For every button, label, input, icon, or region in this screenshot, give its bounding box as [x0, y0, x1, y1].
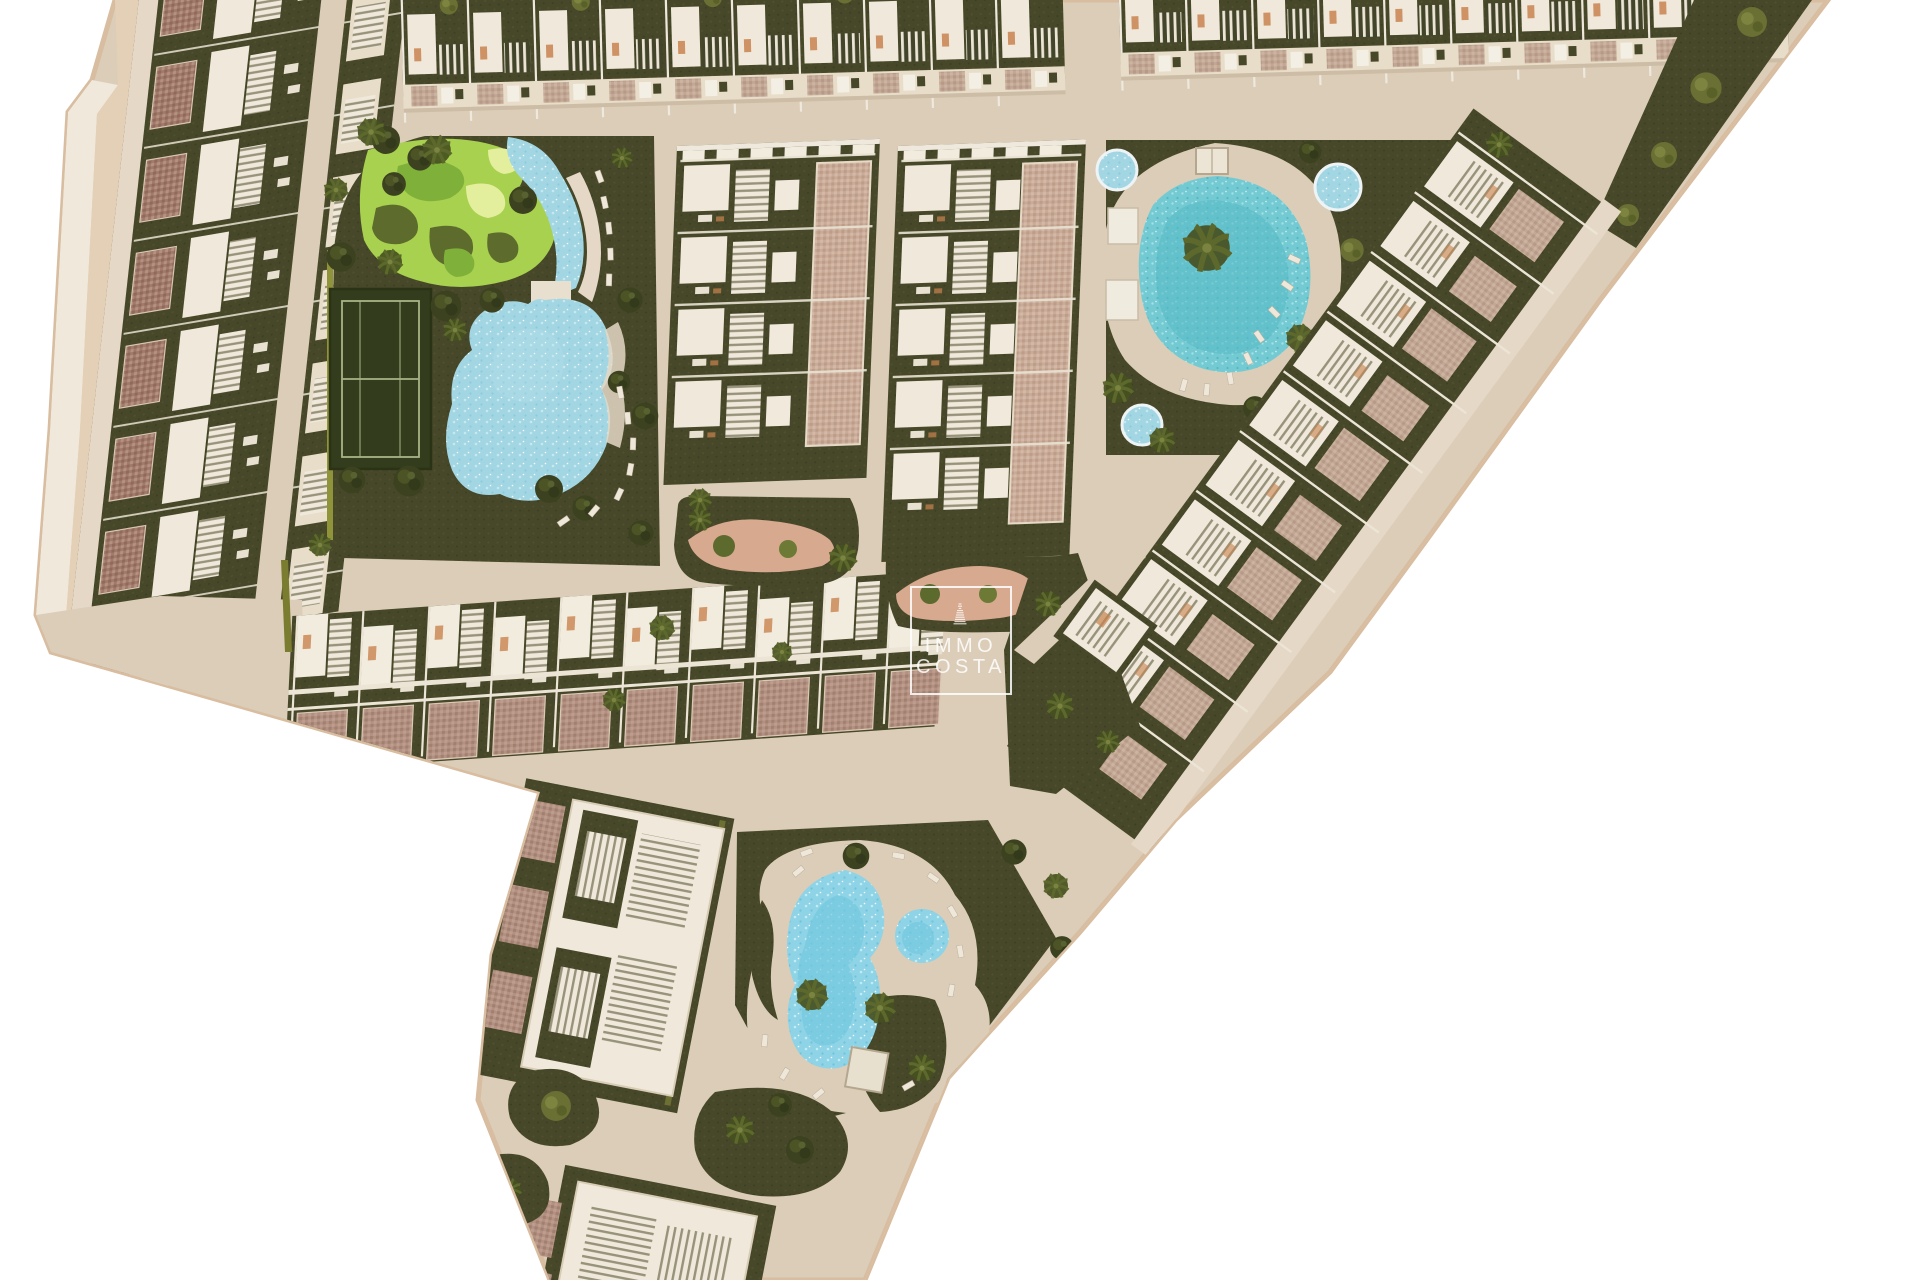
svg-text:IMMO: IMMO [925, 635, 997, 657]
svg-text:COSTA: COSTA [916, 656, 1006, 678]
